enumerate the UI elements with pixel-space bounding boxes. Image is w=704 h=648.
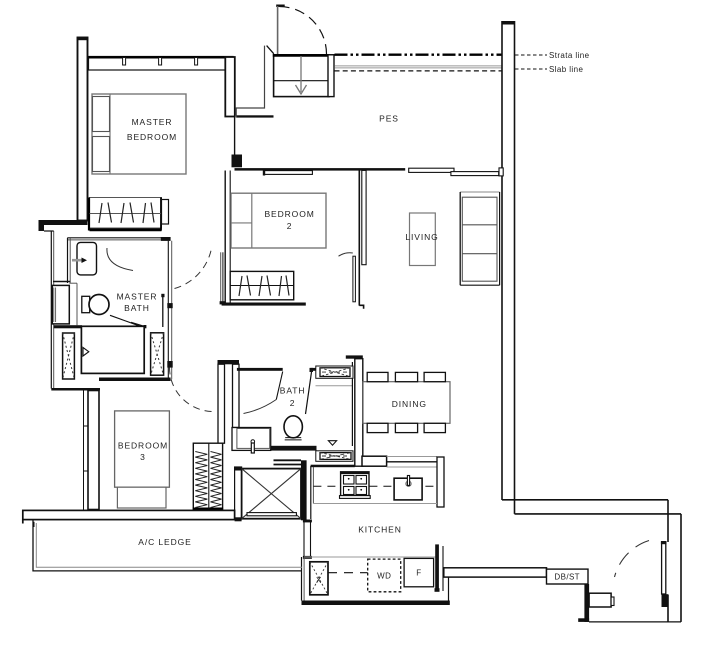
svg-text:Strata line: Strata line [549,51,590,60]
svg-text:Slab line: Slab line [549,65,583,74]
svg-text:A/C LEDGE: A/C LEDGE [138,537,191,547]
svg-text:MASTER: MASTER [132,117,173,127]
svg-text:BATH: BATH [124,303,150,313]
svg-text:BATH: BATH [280,386,306,396]
svg-text:DINING: DINING [392,399,427,409]
svg-text:BEDROOM: BEDROOM [127,132,177,142]
svg-text:WD: WD [377,571,391,580]
svg-text:BEDROOM: BEDROOM [118,440,168,450]
svg-text:2: 2 [290,398,296,408]
svg-text:KITCHEN: KITCHEN [358,524,402,534]
svg-text:BEDROOM: BEDROOM [264,209,314,219]
svg-text:3: 3 [140,452,146,462]
svg-text:PES: PES [379,114,399,124]
svg-text:X: X [316,576,322,585]
svg-text:DB/ST: DB/ST [554,573,580,582]
svg-text:2: 2 [287,221,293,231]
svg-text:LIVING: LIVING [405,232,438,242]
svg-text:MASTER: MASTER [117,292,158,302]
svg-text:F: F [416,569,421,578]
